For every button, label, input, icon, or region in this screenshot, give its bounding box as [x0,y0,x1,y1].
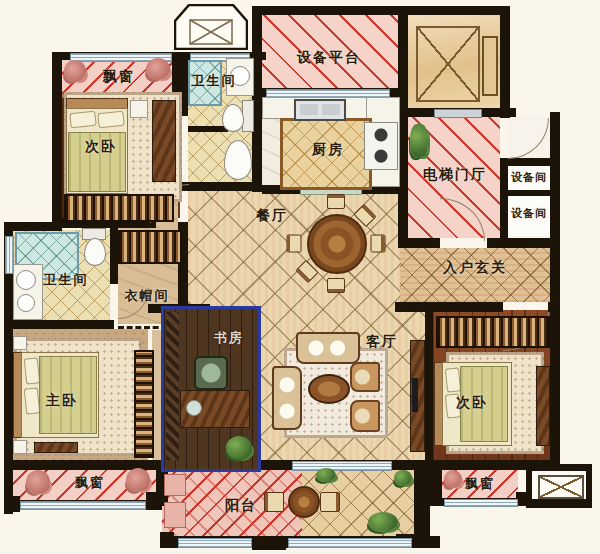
cloakroom-shelving [118,230,182,264]
dresser [536,366,550,446]
sink [16,270,36,290]
ac-box-bottom-right [526,464,592,508]
label-living-room: 客厅 [352,334,412,349]
label-equipment-room-2: 设备间 [508,208,550,220]
wall-segment [188,126,228,132]
bookshelf [166,312,179,460]
wall-segment [180,182,262,191]
wall-segment [500,190,556,196]
armchair [350,362,380,392]
window [288,538,412,548]
window [178,538,252,548]
kitchen-sink [294,99,346,121]
flower-decor [146,58,170,80]
wall-segment [502,108,516,117]
balcony-storage-box [164,474,186,496]
balcony-storage-box [164,502,186,528]
toilet [84,238,106,266]
plant [226,436,252,460]
dining-chair [287,235,302,253]
plant [316,468,336,482]
label-bay-window-top-left: 飘窗 [89,69,149,84]
label-bay-window-bottom-right: 飘窗 [450,477,510,491]
wall-segment [548,302,560,312]
flower-decor [126,468,150,492]
label-bathroom-left: 卫生间 [36,273,96,287]
label-equipment-platform: 设备平台 [294,50,364,65]
label-bay-window-bottom-left: 飘窗 [60,476,120,490]
label-balcony: 阳台 [211,498,271,513]
dining-table [307,214,367,274]
stove [364,122,398,170]
elevator-door [434,109,482,118]
nightstand [130,100,148,118]
dresser [152,100,176,182]
wall-segment [500,6,510,118]
dining-chair [327,278,345,293]
flower-decor [26,470,50,494]
balcony-chair [320,492,340,512]
wall-segment [52,52,62,230]
wardrobe [134,350,154,458]
bench [34,442,78,453]
pillow [97,111,124,129]
wardrobe [436,316,550,348]
pillow [24,357,41,384]
study-chair [194,356,228,390]
balcony-sliding-door [292,461,392,471]
elevator-car-symbol [416,26,480,102]
pillow [69,111,96,129]
wardrobe [64,194,174,222]
wall-segment [398,238,440,248]
wall-segment [252,536,286,550]
label-entrance-foyer: 入户玄关 [437,260,513,275]
window [444,499,518,507]
label-study: 书房 [199,331,259,345]
sink [17,294,35,312]
pillow [445,367,461,392]
wall-segment [4,320,114,329]
coffee-table [308,374,350,404]
wall-segment [395,302,503,312]
wall-segment [425,310,433,468]
balcony-table [288,486,320,518]
wall-segment [428,464,442,502]
plant [410,124,428,158]
basin [224,140,252,180]
ac-platform-top [174,4,248,50]
wall-segment [110,222,118,284]
armchair [350,400,380,432]
label-kitchen: 厨房 [298,142,358,157]
wall-segment [500,158,508,246]
flower-decor [64,60,86,82]
sofa-loveseat [272,366,302,430]
ac-box-x-symbol [538,475,584,499]
nightstand [13,440,27,454]
label-dining-room: 餐厅 [242,208,302,223]
wall-segment [398,6,510,15]
wall-segment [252,6,402,15]
wall-segment [550,112,560,468]
desk-globe [186,400,202,416]
dining-chair [327,194,345,209]
window [20,501,146,510]
elevator-counterweight [482,36,498,96]
wall-segment [252,6,262,56]
label-equipment-room-1: 设备间 [508,172,550,184]
label-bathroom-top: 卫生间 [184,74,244,88]
label-master-bedroom: 主卧 [32,393,92,408]
label-cloakroom: 衣帽间 [117,289,177,303]
toilet-tank [242,100,254,132]
sofa-three-seat [296,332,360,364]
label-elevator-hall: 电梯门厅 [419,167,491,182]
label-bedroom-right: 次卧 [442,395,502,410]
plant [368,512,398,532]
plant [394,470,412,486]
label-bedroom-top-left: 次卧 [71,139,131,154]
tv [412,378,418,412]
nightstand [13,336,27,350]
floor-plan: 飘窗 次卧 卫生间 设备平台 厨房 电梯门厅 设备间 设备间 餐厅 入户玄关 卫… [0,0,600,554]
dining-chair [371,235,386,253]
toilet [222,104,244,132]
wall-segment [160,532,174,548]
